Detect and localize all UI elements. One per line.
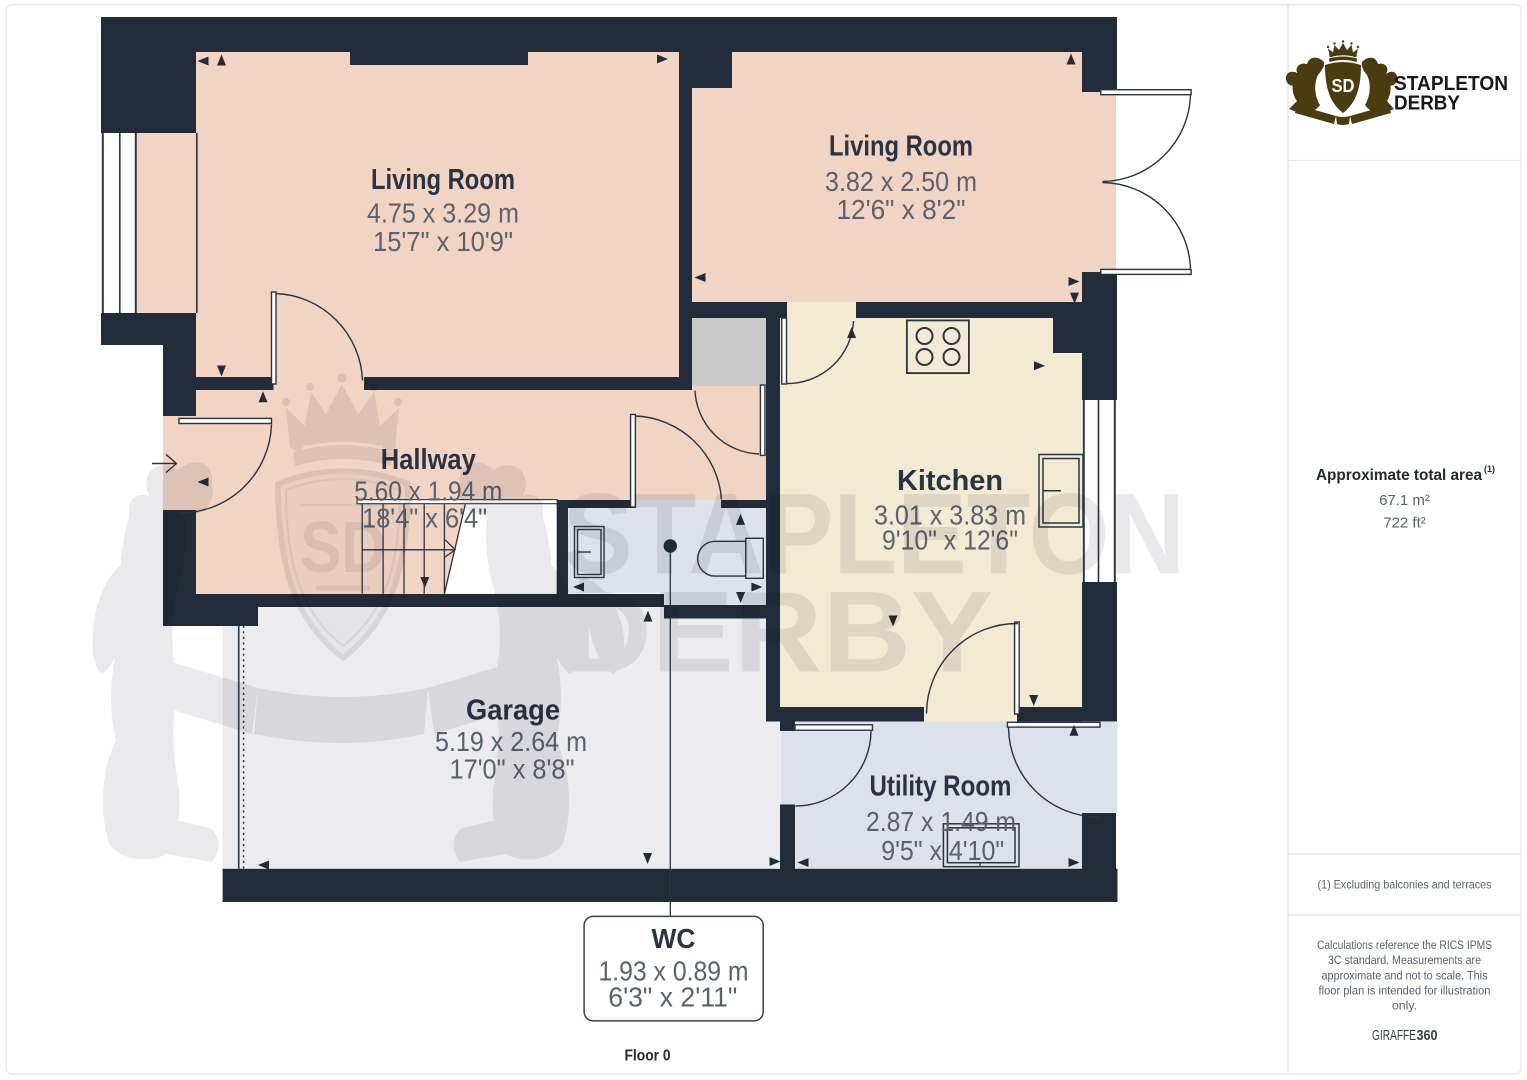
svg-text:4.75 x 3.29 m: 4.75 x 3.29 m: [367, 198, 519, 229]
svg-text:6'3" x 2'11": 6'3" x 2'11": [608, 981, 737, 1012]
svg-text:only.: only.: [1392, 999, 1417, 1013]
svg-text:DERBY: DERBY: [563, 569, 993, 697]
svg-text:2.87 x 1.49 m: 2.87 x 1.49 m: [866, 806, 1016, 837]
svg-text:(1) Excluding balconies and te: (1) Excluding balconies and terraces: [1318, 878, 1492, 892]
svg-text:15'7" x 10'9": 15'7" x 10'9": [373, 226, 513, 257]
svg-text:67.1 m²: 67.1 m²: [1379, 492, 1430, 509]
svg-text:floor plan is intended for ill: floor plan is intended for illustration: [1319, 984, 1491, 998]
svg-text:Utility Room: Utility Room: [870, 770, 1012, 802]
svg-text:approximate and not to scale.: approximate and not to scale. This: [1322, 968, 1488, 982]
svg-text:3.82 x 2.50 m: 3.82 x 2.50 m: [825, 166, 977, 197]
svg-text:722 ft²: 722 ft²: [1383, 515, 1426, 532]
svg-text:360: 360: [1417, 1028, 1438, 1044]
svg-text:SD: SD: [1332, 76, 1355, 96]
svg-text:GIRAFFE: GIRAFFE: [1372, 1028, 1416, 1044]
svg-text:Living Room: Living Room: [829, 130, 973, 162]
svg-text:3C standard. Measurements are: 3C standard. Measurements are: [1328, 953, 1481, 967]
svg-text:Approximate total area: Approximate total area: [1316, 467, 1482, 484]
svg-text:DERBY: DERBY: [1394, 92, 1460, 115]
svg-text:SD: SD: [300, 508, 386, 588]
svg-text:Floor 0: Floor 0: [625, 1047, 671, 1064]
svg-text:12'6" x 8'2": 12'6" x 8'2": [837, 194, 966, 225]
svg-text:Living Room: Living Room: [371, 164, 515, 196]
svg-text:(1): (1): [1484, 464, 1495, 474]
svg-text:Calculations reference the RIC: Calculations reference the RICS IPMS: [1317, 938, 1492, 952]
svg-text:9'5" x 4'10": 9'5" x 4'10": [881, 835, 1004, 866]
svg-text:WC: WC: [652, 923, 696, 954]
